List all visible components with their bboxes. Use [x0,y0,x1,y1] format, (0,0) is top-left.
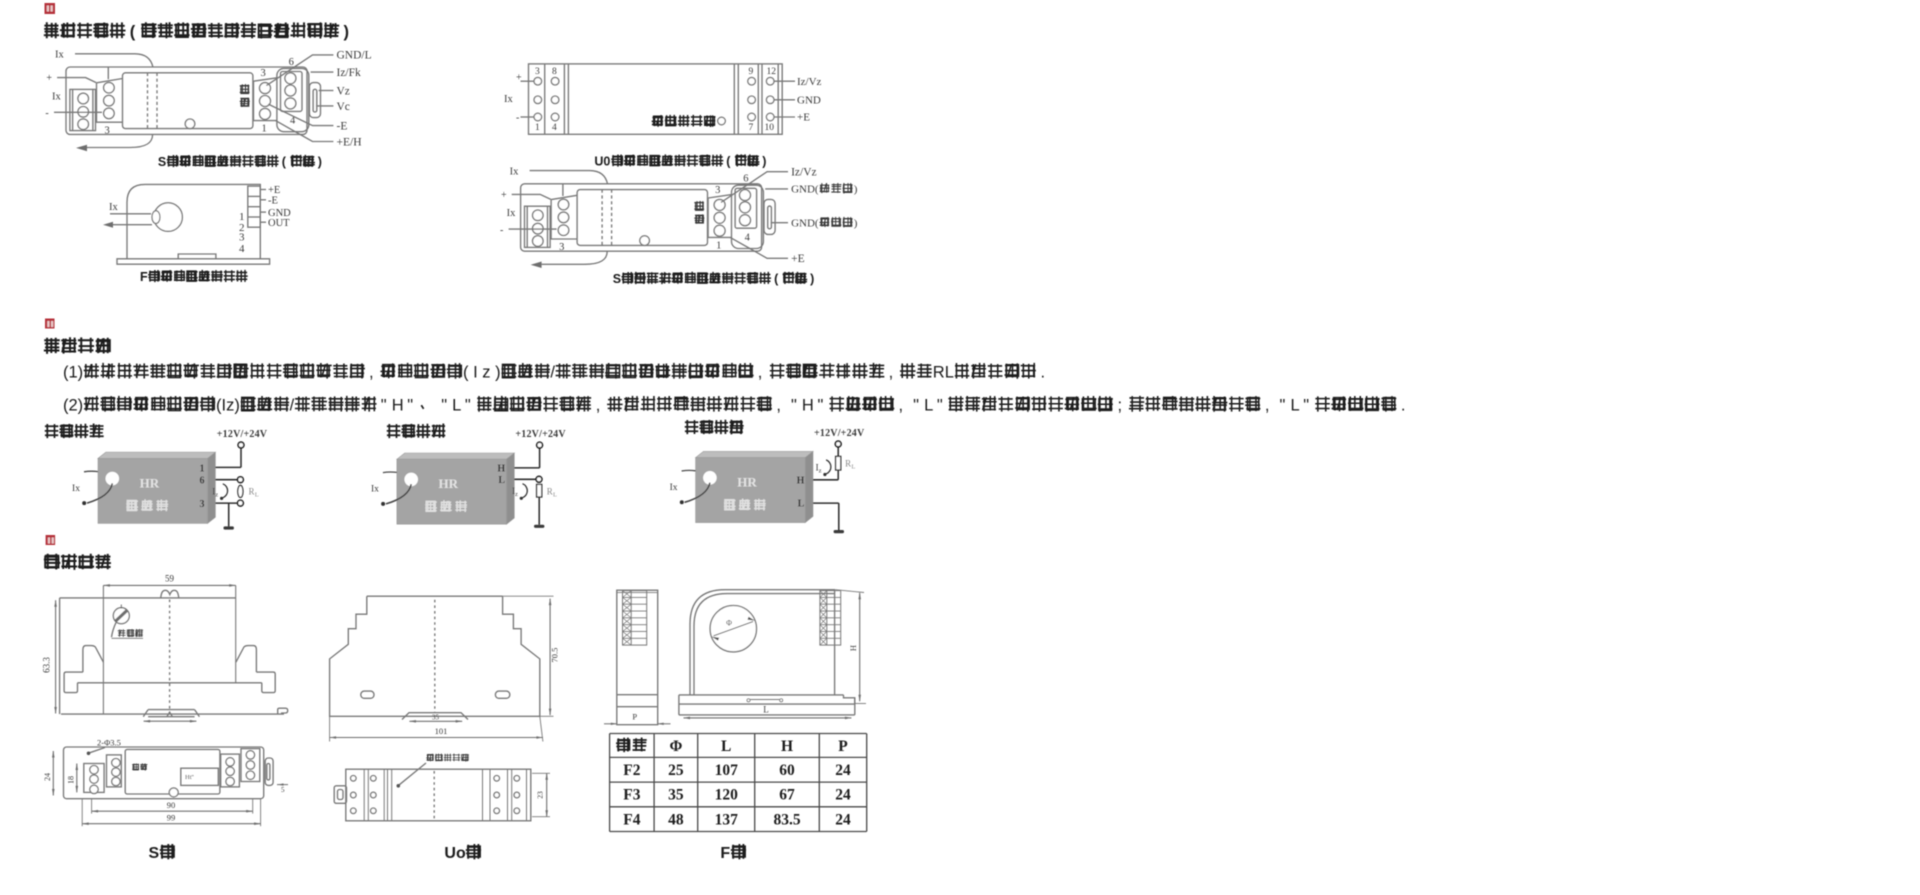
svg-text:RL: RL [933,364,954,382]
svg-text:H: H [497,464,505,475]
svg-text:4: 4 [552,123,557,133]
svg-text:S: S [158,155,166,169]
svg-text:F2: F2 [623,762,640,779]
svg-text:+E: +E [268,185,280,196]
svg-text:F: F [720,845,730,862]
svg-text:Uo: Uo [444,845,466,862]
svg-text:Ix: Ix [55,50,64,61]
svg-text:,: , [899,397,904,415]
svg-text:-E: -E [337,121,348,133]
svg-text:6: 6 [200,475,205,486]
svg-text:-: - [45,108,48,119]
svg-text:(: ( [282,155,287,169]
svg-text:35: 35 [668,787,684,804]
svg-text:4: 4 [239,243,245,255]
svg-text:L: L [553,492,557,499]
svg-text:,: , [596,397,601,415]
svg-text:Vc: Vc [337,101,350,113]
svg-text:+E: +E [791,253,805,265]
svg-text:z: z [215,491,218,498]
svg-text:Φ: Φ [669,738,682,755]
svg-text:": " [465,397,471,415]
svg-text:H: H [802,397,814,415]
svg-text:L: L [763,705,769,715]
svg-text:+12V/+24V: +12V/+24V [515,429,566,440]
svg-text:F: F [140,270,148,284]
svg-text:H: H [797,475,805,486]
svg-text:9: 9 [749,67,754,77]
svg-text:": " [937,397,943,415]
svg-text:59: 59 [165,574,175,584]
svg-text:): ) [810,272,814,286]
svg-text:z: z [515,491,518,498]
svg-text:63.3: 63.3 [42,657,52,673]
svg-text:90: 90 [167,800,176,810]
svg-text:(: ( [130,23,136,41]
svg-text:": " [381,397,387,415]
svg-text:101: 101 [435,726,448,736]
svg-text:8: 8 [552,67,557,77]
svg-text:+E: +E [797,112,810,124]
svg-text:): ) [762,155,766,169]
svg-text:24: 24 [835,787,851,804]
svg-text:): ) [318,155,322,169]
svg-text:3: 3 [559,242,564,253]
svg-text:Ix: Ix [371,485,379,495]
svg-text:U0: U0 [594,155,610,169]
svg-text:+: + [46,73,52,84]
svg-text:+E/H: +E/H [337,136,362,148]
svg-text:24: 24 [43,773,52,781]
svg-text:R: R [845,459,851,469]
svg-text:): ) [854,218,858,230]
svg-text:23: 23 [536,791,545,799]
svg-text:6: 6 [289,57,294,68]
svg-text:5: 5 [281,786,285,794]
svg-text:L: L [721,738,731,755]
svg-text:": " [441,397,447,415]
svg-text:4: 4 [745,232,751,243]
svg-text:2-Φ3.5: 2-Φ3.5 [97,738,121,748]
svg-text:Ix: Ix [510,166,519,177]
svg-text:6: 6 [743,174,748,185]
svg-text:(: ( [774,272,779,286]
svg-text:OUT: OUT [268,218,290,229]
svg-text:HR: HR [439,476,459,491]
svg-text:S: S [613,272,621,286]
svg-text:GND(: GND( [791,184,819,196]
svg-text:HR: HR [737,475,757,490]
svg-text:S: S [149,845,160,862]
svg-text:3: 3 [200,499,205,510]
svg-text:12: 12 [767,67,777,77]
svg-text:HR: HR [140,475,160,490]
svg-text:(: ( [726,155,731,169]
svg-text:": " [1303,397,1309,415]
svg-text:67: 67 [779,787,795,804]
svg-text:3: 3 [105,125,110,136]
svg-text:R: R [547,487,553,497]
svg-text:P: P [838,738,848,755]
svg-text:107: 107 [715,762,739,779]
svg-text:(2): (2) [63,397,83,415]
svg-text:35: 35 [432,714,440,722]
svg-text:): ) [854,184,858,196]
svg-text:(1): (1) [63,364,83,382]
svg-text:": " [913,397,919,415]
svg-text:48: 48 [668,811,684,828]
svg-text:1: 1 [262,124,267,135]
svg-text:/: / [550,364,555,382]
svg-text:18: 18 [67,776,76,784]
svg-text:137: 137 [715,811,739,828]
svg-text:L: L [498,475,505,486]
svg-text:120: 120 [715,787,739,804]
svg-text:,: , [758,364,763,382]
svg-text:L: L [851,464,855,471]
svg-text:1: 1 [716,240,721,251]
svg-text:": " [791,397,797,415]
svg-text:P: P [632,712,637,722]
svg-text:": " [1280,397,1286,415]
svg-text:F3: F3 [623,787,640,804]
svg-text:L: L [924,397,933,415]
svg-text:25: 25 [668,762,684,779]
svg-text:GND: GND [797,94,821,106]
svg-text:/: / [290,397,295,415]
svg-text:L: L [452,397,461,415]
svg-text:83.5: 83.5 [773,811,800,828]
svg-text:+: + [516,73,522,84]
svg-text:L: L [1291,397,1300,415]
svg-text:F4: F4 [623,811,640,828]
svg-text:-: - [516,113,519,124]
svg-text:-: - [500,225,503,236]
svg-text:Iz/Fk: Iz/Fk [337,67,362,79]
svg-text:,: , [776,397,781,415]
svg-text:": " [407,397,413,415]
svg-text:+12V/+24V: +12V/+24V [217,429,268,440]
svg-text:Ix: Ix [72,484,80,494]
svg-text:(Iz): (Iz) [216,397,240,415]
svg-text:,: , [889,364,894,382]
svg-text:Φ: Φ [726,619,732,628]
svg-text:Ix: Ix [507,208,516,219]
svg-text:60: 60 [779,762,795,779]
svg-text:7: 7 [749,123,754,133]
svg-text:1: 1 [200,463,205,474]
svg-text:24: 24 [835,811,851,828]
svg-text:Ix: Ix [109,202,118,213]
svg-text:Ix: Ix [670,483,678,493]
svg-text:Vz: Vz [337,85,350,97]
svg-text:( I z ): ( I z ) [463,364,501,382]
svg-text:": " [818,397,824,415]
svg-text:3: 3 [261,68,266,79]
svg-text:1: 1 [535,123,540,133]
svg-text:Iz/Vz: Iz/Vz [797,76,822,88]
svg-text:Ix: Ix [504,94,513,105]
svg-text:3: 3 [239,232,245,244]
svg-text:,: , [369,364,374,382]
svg-text:;: ; [1118,397,1123,415]
svg-text:GND(: GND( [791,218,819,230]
svg-text:70.5: 70.5 [550,648,560,663]
svg-text:L: L [255,491,259,498]
svg-text:z: z [819,467,822,474]
svg-text:H: H [781,738,793,755]
svg-text:H: H [848,645,858,651]
svg-text:L: L [798,499,805,510]
svg-text:,: , [1265,397,1270,415]
svg-text:3: 3 [535,67,540,77]
svg-text:3: 3 [715,185,720,196]
svg-text:Ht'': Ht'' [185,774,194,781]
svg-text:): ) [344,23,350,41]
svg-text:Ix: Ix [52,91,61,102]
svg-text:+: + [501,190,507,201]
svg-text:.: . [1041,364,1046,382]
svg-text:H: H [392,397,404,415]
svg-text:.: . [1401,397,1406,415]
svg-text:Iz/Vz: Iz/Vz [791,167,817,179]
svg-text:24: 24 [835,762,851,779]
svg-text:+12V/+24V: +12V/+24V [814,428,865,439]
svg-text:-E: -E [268,196,278,207]
svg-text:GND/L: GND/L [337,50,372,62]
svg-text:99: 99 [167,813,176,823]
svg-text:R: R [249,486,255,496]
svg-text:10: 10 [765,123,775,133]
